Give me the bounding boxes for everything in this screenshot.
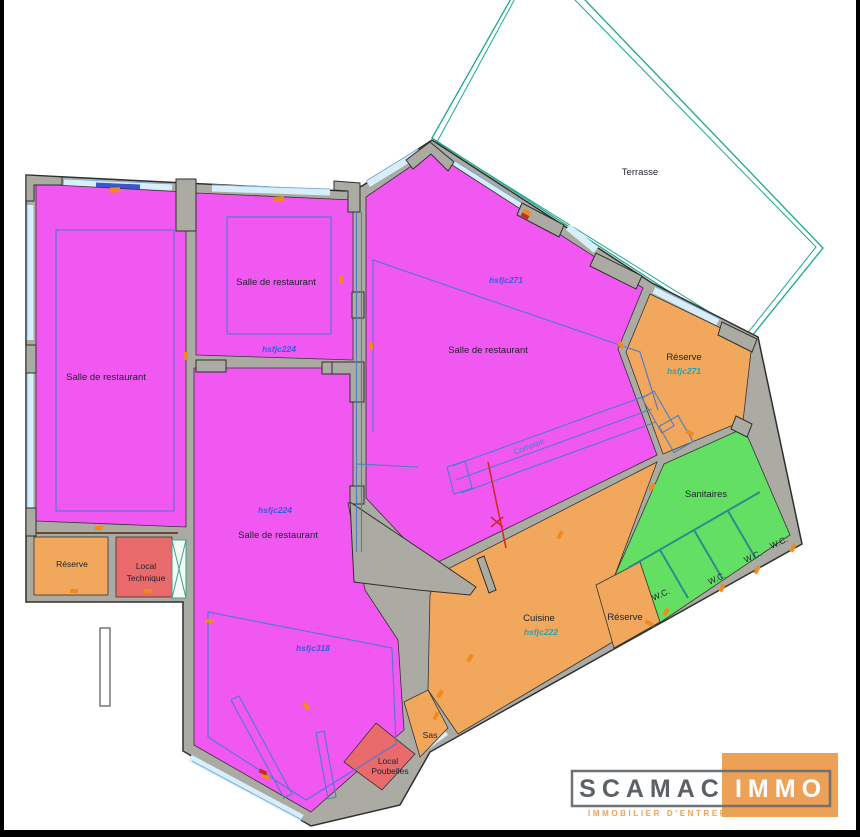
label-salle-left: Salle de restaurant	[66, 372, 146, 383]
logo-text-immo: IMMO	[735, 775, 827, 803]
shaft-hatch	[172, 540, 186, 598]
label-salle-right: Salle de restaurant	[448, 345, 528, 356]
label-reserve-right-code: hsfjc271	[667, 366, 701, 376]
floor-plan-page: Terrasse Salle de restaurant Salle de re…	[0, 0, 860, 837]
label-cuisine-code: hsfjc222	[524, 627, 558, 637]
label-local-poubelles-1: Local	[378, 756, 398, 766]
label-salle-mid-top-code: hsfjc224	[262, 344, 296, 354]
logo-text-scamac: SCAMAC	[579, 775, 725, 803]
label-sas: Sas	[423, 730, 438, 740]
label-salle-right-code: hsfjc271	[489, 275, 523, 285]
label-salle-central: Salle de restaurant	[238, 530, 318, 541]
label-reserve-right: Réserve	[666, 352, 701, 363]
floor-plan-drawing: Terrasse Salle de restaurant Salle de re…	[0, 0, 860, 837]
label-terrasse: Terrasse	[622, 167, 658, 178]
label-local-technique-2: Technique	[127, 573, 166, 583]
label-salle-central-code2: hsfjc318	[296, 643, 330, 653]
exterior-wall-stub	[100, 628, 110, 706]
logo-tagline: IMMOBILIER D'ENTREPRISE	[588, 809, 757, 818]
label-local-poubelles-2: Poubelles	[371, 766, 408, 776]
label-local-technique-1: Local	[136, 561, 156, 571]
label-cuisine: Cuisine	[523, 613, 555, 624]
scamac-immo-logo: SCAMAC IMMO IMMOBILIER D'ENTREPRISE	[572, 753, 838, 818]
label-reserve-mid: Réserve	[607, 612, 642, 623]
label-salle-central-code: hsfjc224	[258, 505, 292, 515]
room-salle-restaurant-left	[36, 184, 186, 527]
label-reserve-left: Réserve	[56, 559, 88, 569]
label-sanitaires: Sanitaires	[685, 489, 727, 500]
label-salle-mid-top: Salle de restaurant	[236, 277, 316, 288]
